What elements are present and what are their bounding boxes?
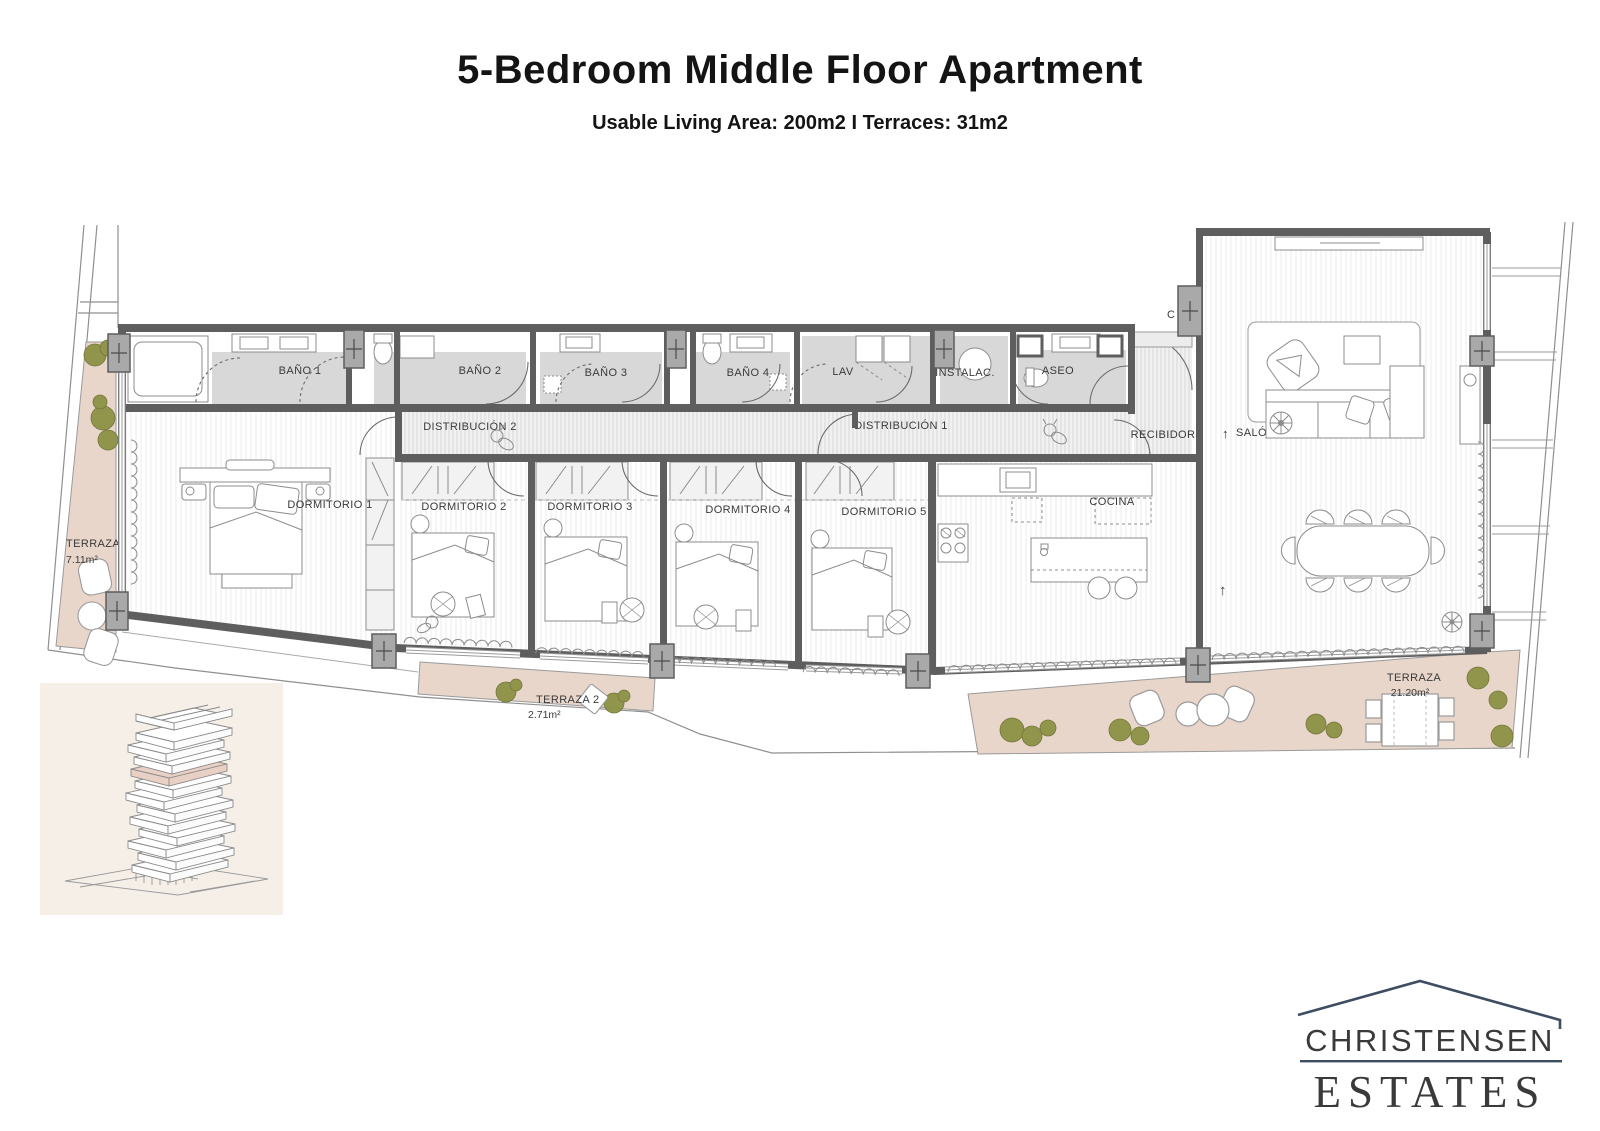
room-label-recibidor: RECIBIDOR <box>1131 429 1196 441</box>
terrace-1-area: 7.11m² <box>66 554 98 566</box>
building-illustration <box>40 683 283 915</box>
room-label-instalac: INSTALAC. <box>935 367 995 379</box>
neighbor-structure <box>1492 268 1561 620</box>
room-label-aseo: ASEO <box>1042 365 1074 377</box>
salon-arrow: ↑ <box>1222 426 1229 441</box>
room-label-bano1: BAÑO 1 <box>279 364 322 377</box>
terrace-2-label: TERRAZA 2 <box>536 694 600 706</box>
room-label-bano4: BAÑO 4 <box>727 366 770 379</box>
floor-plan-page: 5-Bedroom Middle Floor Apartment Usable … <box>0 0 1600 1131</box>
brand-logo: CHRISTENSEN ESTATES <box>1280 965 1580 1125</box>
logo-divider <box>1300 1060 1562 1062</box>
terrace-2-area: 2.71m² <box>528 709 561 721</box>
roof-icon <box>1298 981 1560 1029</box>
room-label-bano3: BAÑO 3 <box>585 366 628 379</box>
room-label-distribucion1: DISTRIBUCIÓN 1 <box>854 419 948 432</box>
room-label-dormitorio2: DORMITORIO 2 <box>421 501 506 513</box>
room-label-cocina: COCINA <box>1089 496 1134 508</box>
floor-plan: TERRAZA 1 7.11m² TERRAZA 2 2.71m² <box>0 0 1600 1131</box>
room-label-bano2: BAÑO 2 <box>459 364 502 377</box>
room-label-dormitorio3: DORMITORIO 3 <box>547 501 632 513</box>
room-label-dormitorio1: DORMITORIO 1 <box>287 499 372 511</box>
brand-tagline: ESTATES <box>1314 1067 1547 1117</box>
terrace-main-area: 21.20m² <box>1391 687 1430 699</box>
terrace-main-label: TERRAZA <box>1387 672 1441 684</box>
room-label-dormitorio4: DORMITORIO 4 <box>705 504 790 516</box>
room-label-closet: C <box>1167 309 1175 321</box>
room-label-dormitorio5: DORMITORIO 5 <box>841 506 926 518</box>
terrace-2: TERRAZA 2 2.71m² <box>418 662 655 721</box>
floor-fills <box>124 236 1483 671</box>
room-label-lav: LAV <box>832 366 853 378</box>
brand-name: CHRISTENSEN <box>1305 1023 1555 1058</box>
stairs-arrow: ↑ <box>1219 582 1227 599</box>
